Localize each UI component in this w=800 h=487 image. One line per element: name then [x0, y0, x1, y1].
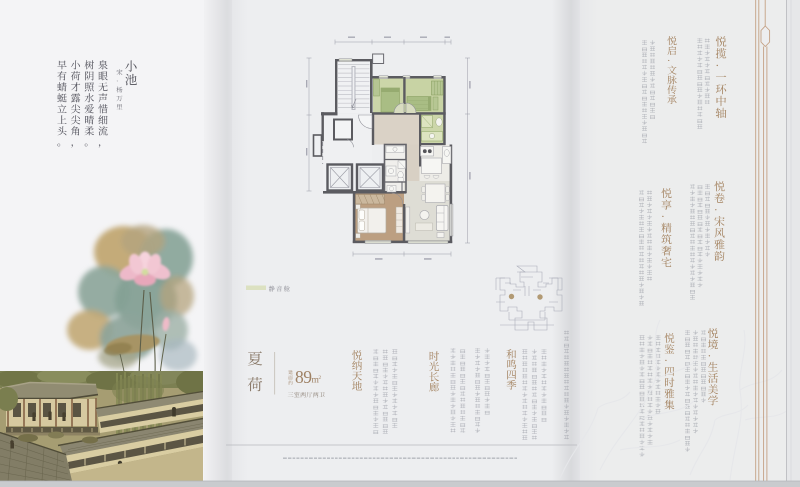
svg-text:89m2: 89m2 — [295, 367, 321, 387]
